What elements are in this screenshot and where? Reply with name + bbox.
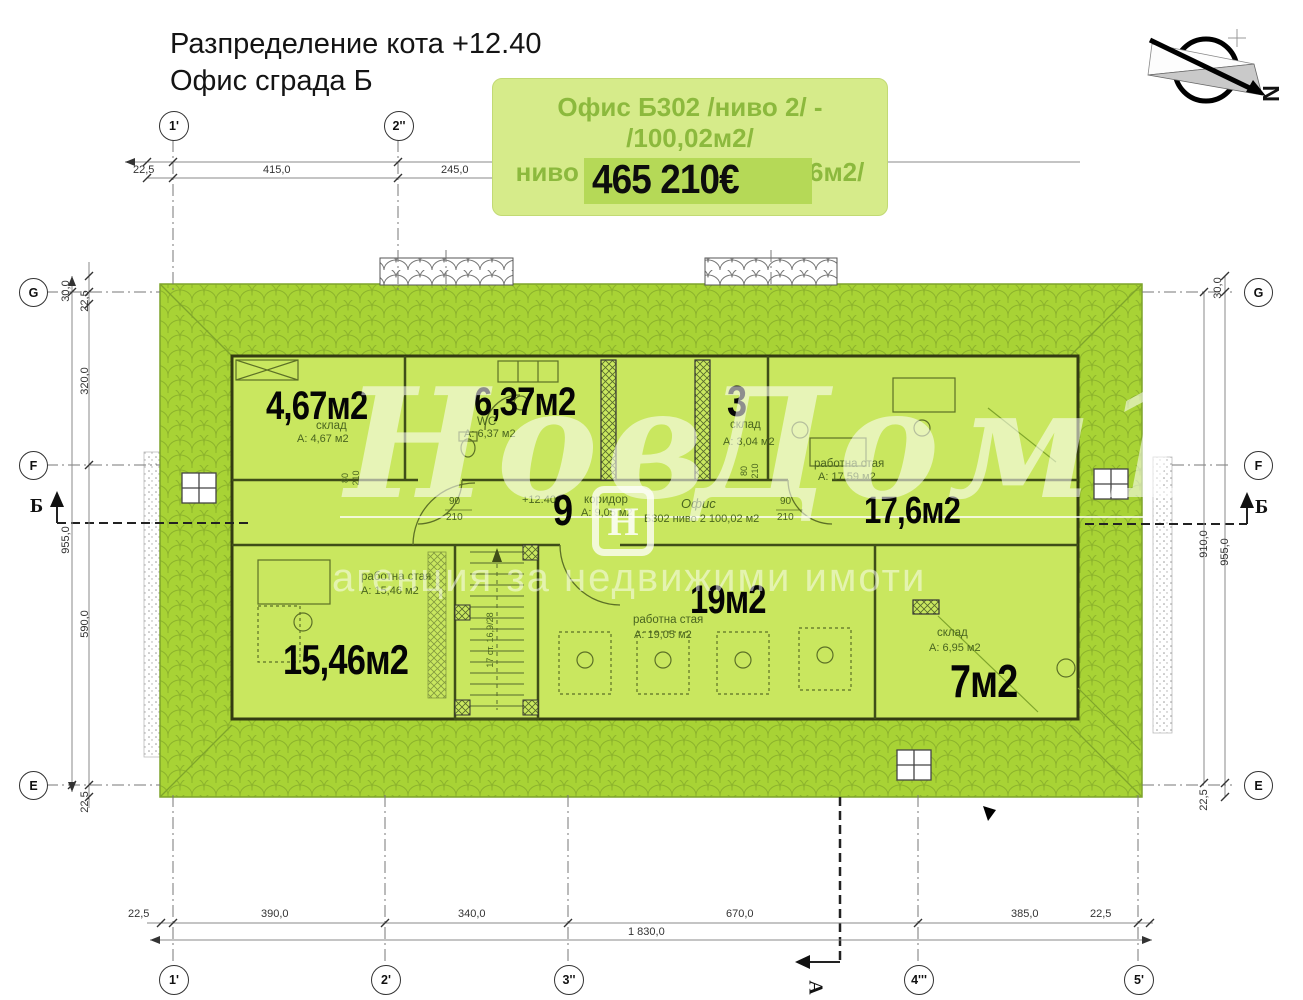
room-storage1-area: A: 4,67 м2 xyxy=(297,433,349,445)
dim-bottom-390: 390,0 xyxy=(261,908,289,920)
title-line1: Разпределение кота +12.40 xyxy=(170,26,542,63)
dim-right-910: 910,0 xyxy=(1198,530,1210,558)
section-b-right-label: Б xyxy=(1255,496,1268,519)
cursor-mark xyxy=(983,806,996,821)
grid-marker-right-g: G xyxy=(1244,278,1273,307)
title-line2: Офис сграда Б xyxy=(170,63,542,100)
door1-width: 90 xyxy=(449,496,460,507)
dim-bottom-670: 670,0 xyxy=(726,908,754,920)
room-work3-area: A: 15,46 м2 xyxy=(361,585,419,597)
dim-left-320: 320,0 xyxy=(79,367,91,395)
dim-right-955: 955,0 xyxy=(1219,538,1231,566)
agency-logo: Н xyxy=(592,486,654,556)
room-storage1-name: склад xyxy=(316,420,347,432)
section-b-left-label: Б xyxy=(30,495,43,518)
dim-right-30: 30,0 xyxy=(1212,277,1224,298)
grid-marker-bottom-1: 1' xyxy=(159,965,189,995)
north-label: N xyxy=(1257,85,1284,102)
office-info-annotation: Б302 ниво 2 100,02 м2 xyxy=(644,513,759,525)
level-annotation: +12.40 xyxy=(522,494,556,506)
grid-marker-top-2: 2'' xyxy=(384,111,414,141)
dim-left-955: 955,0 xyxy=(60,526,72,554)
dim-top-245: 245,0 xyxy=(441,164,469,176)
grid-marker-top-1: 1' xyxy=(159,111,189,141)
room-storage2-name: склад xyxy=(730,419,761,431)
door1-height: 210 xyxy=(446,512,463,523)
dim-left-225b: 22,5 xyxy=(79,791,91,812)
dim-left-225a: 22,5 xyxy=(79,290,91,311)
dim-bottom-total: 1 830,0 xyxy=(628,926,665,938)
room-storage3-name: склад xyxy=(937,627,968,639)
dim-left-30: 30,0 xyxy=(60,280,72,301)
page-title: Разпределение кота +12.40 Офис сграда Б xyxy=(170,26,542,100)
stair-note: 17 ст. 16,9/28 xyxy=(485,612,495,667)
dim-bottom-340: 340,0 xyxy=(458,908,486,920)
wall2-height: 210 xyxy=(750,463,760,478)
offer-line1: Офис Б302 /ниво 2/ - /100,02м2/ xyxy=(493,92,887,154)
office-name-annotation: Офис xyxy=(681,496,716,511)
dim-left-590: 590,0 xyxy=(79,610,91,638)
grid-marker-right-e: E xyxy=(1244,771,1273,800)
offer-price: 465 210€ xyxy=(592,156,739,203)
offer-box: Офис Б302 /ниво 2/ - /100,02м2/ ниво 1 +… xyxy=(492,78,888,216)
grid-marker-left-g: G xyxy=(19,278,48,307)
grid-marker-bottom-4: 4''' xyxy=(904,965,934,995)
room-work1-name: работна стая xyxy=(814,458,884,470)
wall1-width: 80 xyxy=(340,473,350,483)
grid-marker-bottom-2: 2' xyxy=(371,965,401,995)
grid-marker-bottom-3: 3'' xyxy=(554,965,584,995)
wall2-width: 80 xyxy=(739,466,749,476)
grid-marker-left-f: F xyxy=(19,451,48,480)
grid-marker-bottom-5: 5' xyxy=(1124,965,1154,995)
room-work3-name: работна стая xyxy=(361,571,431,583)
section-a-line xyxy=(795,797,840,969)
grid-marker-left-e: E xyxy=(19,771,48,800)
dim-top-225: 22,5 xyxy=(133,164,154,176)
floor-plan-page: Разпределение кота +12.40 Офис сграда Б … xyxy=(0,0,1303,1000)
room-storage3-area: A: 6,95 м2 xyxy=(929,642,981,654)
room-storage2-area: A: 3,04 м2 xyxy=(723,436,775,448)
room-storage3-big: 7м2 xyxy=(950,654,1017,708)
north-arrow xyxy=(1148,29,1266,101)
door2-height: 210 xyxy=(777,512,794,523)
door2-width: 90 xyxy=(780,496,791,507)
room-work1-area: A: 17,59 м2 xyxy=(818,471,876,483)
dim-bottom-225a: 22,5 xyxy=(128,908,149,920)
room-wc-area: A: 6,37 м2 xyxy=(464,428,516,440)
grid-marker-right-f: F xyxy=(1244,451,1273,480)
dim-bottom-225b: 22,5 xyxy=(1090,908,1111,920)
wall1-height: 210 xyxy=(351,470,361,485)
dim-bottom-385: 385,0 xyxy=(1011,908,1039,920)
room-work1-big: 17,6м2 xyxy=(864,490,960,533)
dim-top-415: 415,0 xyxy=(263,164,291,176)
room-work2-area: A: 19,05 м2 xyxy=(634,629,692,641)
room-work3-big: 15,46м2 xyxy=(283,636,408,684)
room-work2-name: работна стая xyxy=(633,614,703,626)
dim-right-225: 22,5 xyxy=(1198,789,1210,810)
section-a-bottom-label: А xyxy=(804,980,827,994)
room-wc-name: WC xyxy=(477,416,496,428)
